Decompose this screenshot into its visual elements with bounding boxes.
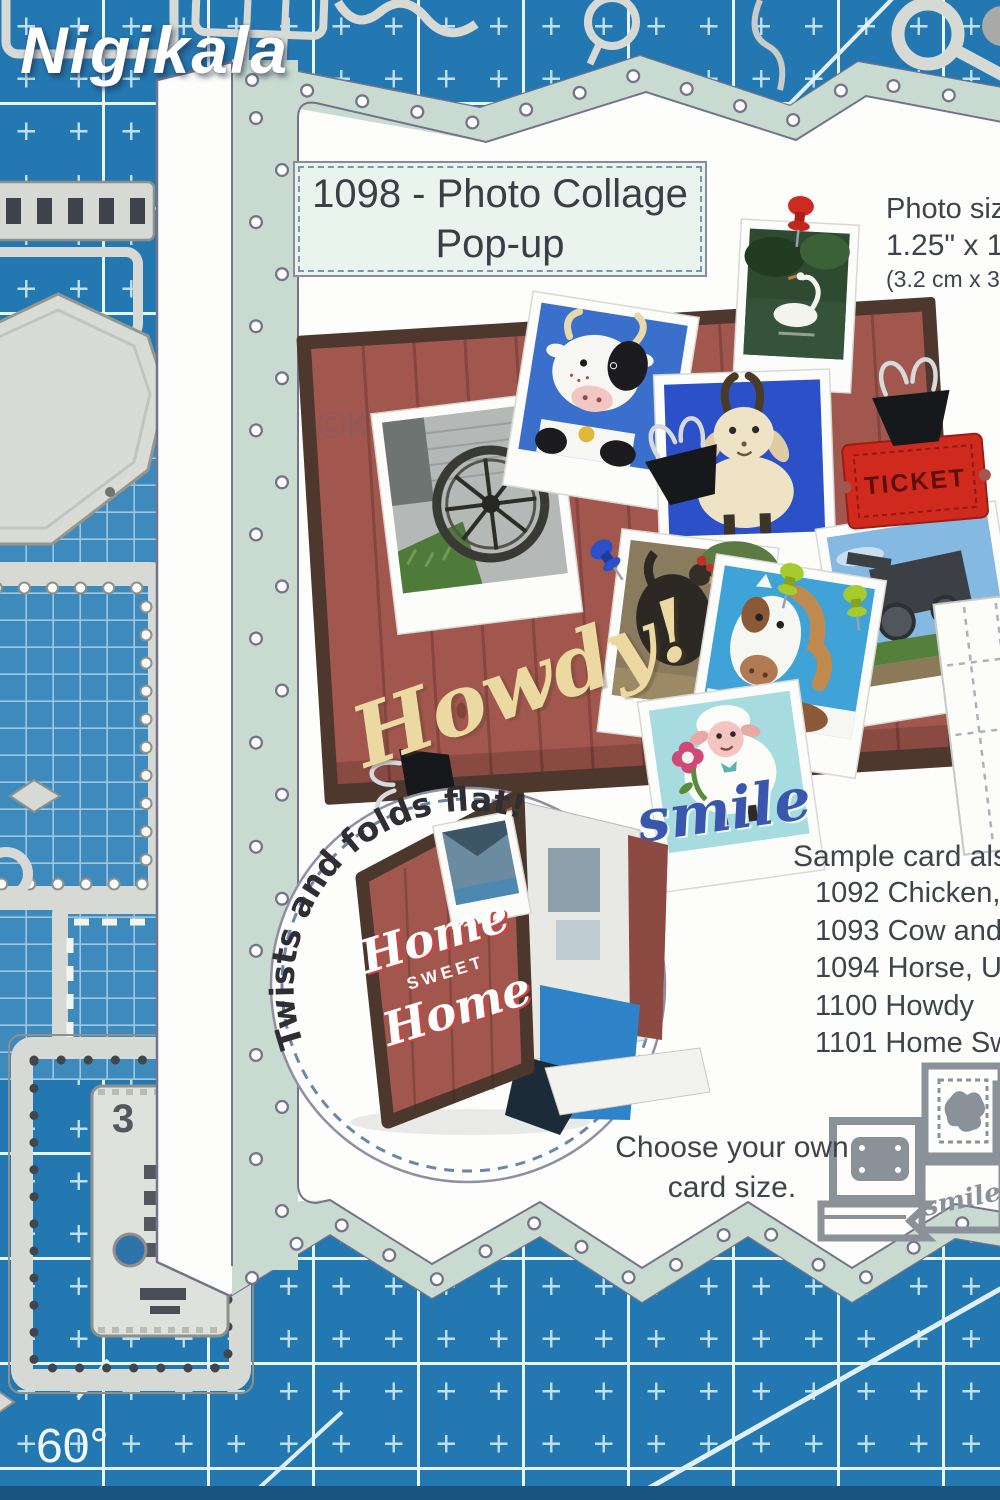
product-title-box: 1098 - Photo Collage Pop-up: [293, 161, 707, 277]
choose-size-line2: card size.: [597, 1168, 867, 1208]
choose-size-note: Choose your own card size.: [597, 1128, 867, 1208]
photo-size-inches: 1.25" x 1.2: [886, 227, 1000, 264]
brand-watermark: Nigikala: [20, 12, 289, 88]
product-photo: { "brand_watermark": "Nigikala", "artist…: [0, 0, 1000, 1500]
product-title-line2: Pop-up: [436, 219, 565, 269]
partial-die-icon: [996, 1084, 1000, 1154]
sample-card-item: 1093 Cow and G: [815, 913, 1000, 951]
sample-cards-list: Sample card also 1092 Chicken, P 1093 Co…: [793, 838, 1000, 1063]
ticket-diecut: TICKET: [836, 433, 995, 530]
squares-bar-die: [0, 182, 154, 240]
sample-card-item: 1092 Chicken, P: [815, 875, 1000, 913]
product-title-line1: 1098 - Photo Collage: [312, 169, 688, 219]
photo-size-note: Photo siz 1.25" x 1.2 (3.2 cm x 3.2: [886, 192, 1000, 294]
sample-card-item: 1101 Home Swee: [815, 1025, 1000, 1063]
photo-size-label: Photo siz: [886, 192, 1000, 227]
sample-card-item: 1094 Horse, Uni: [815, 950, 1000, 988]
mat-angle-label: 60°: [36, 1420, 109, 1473]
photo-size-cm: (3.2 cm x 3.2: [886, 264, 1000, 294]
mat-edge-strip: [0, 1486, 1000, 1500]
choose-size-line1: Choose your own: [597, 1128, 867, 1168]
sample-card-item: 1100 Howdy: [815, 988, 1000, 1026]
sample-cards-heading: Sample card also: [793, 838, 1000, 875]
ticket-die-number: 3: [112, 1097, 134, 1141]
